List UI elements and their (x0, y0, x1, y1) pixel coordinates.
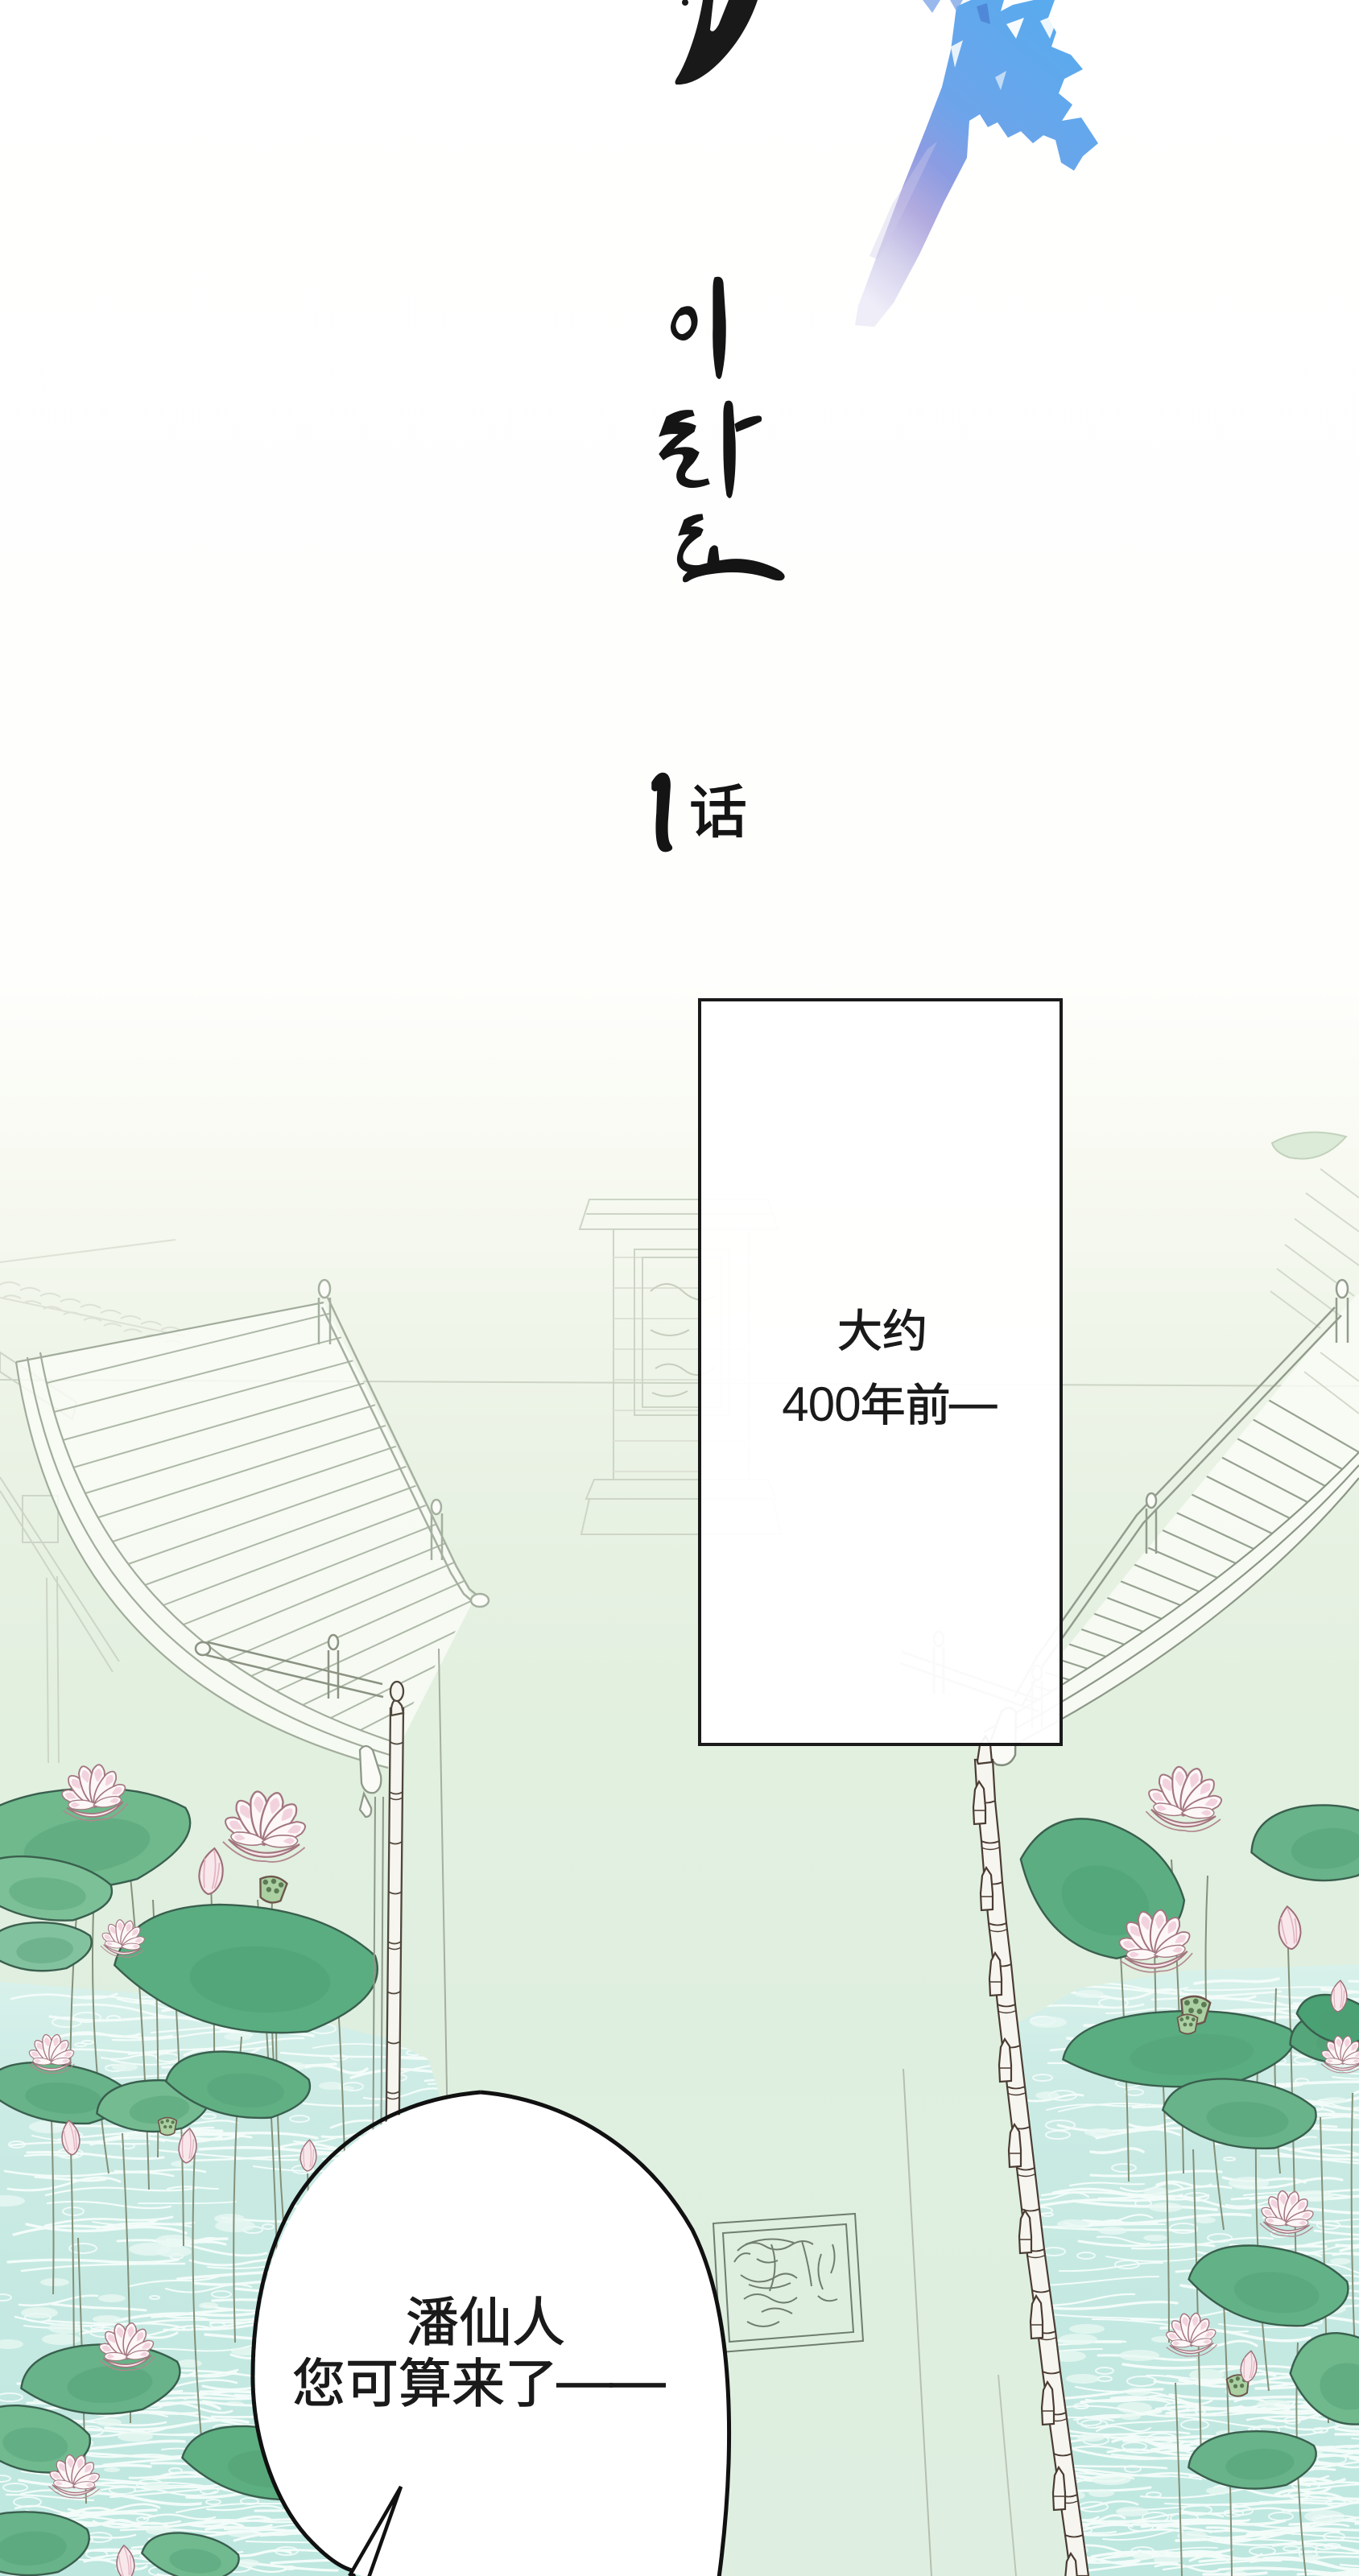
svg-text:4: 4 (782, 1377, 808, 1431)
svg-text:0: 0 (808, 1377, 835, 1431)
svg-text:0: 0 (834, 1377, 861, 1431)
